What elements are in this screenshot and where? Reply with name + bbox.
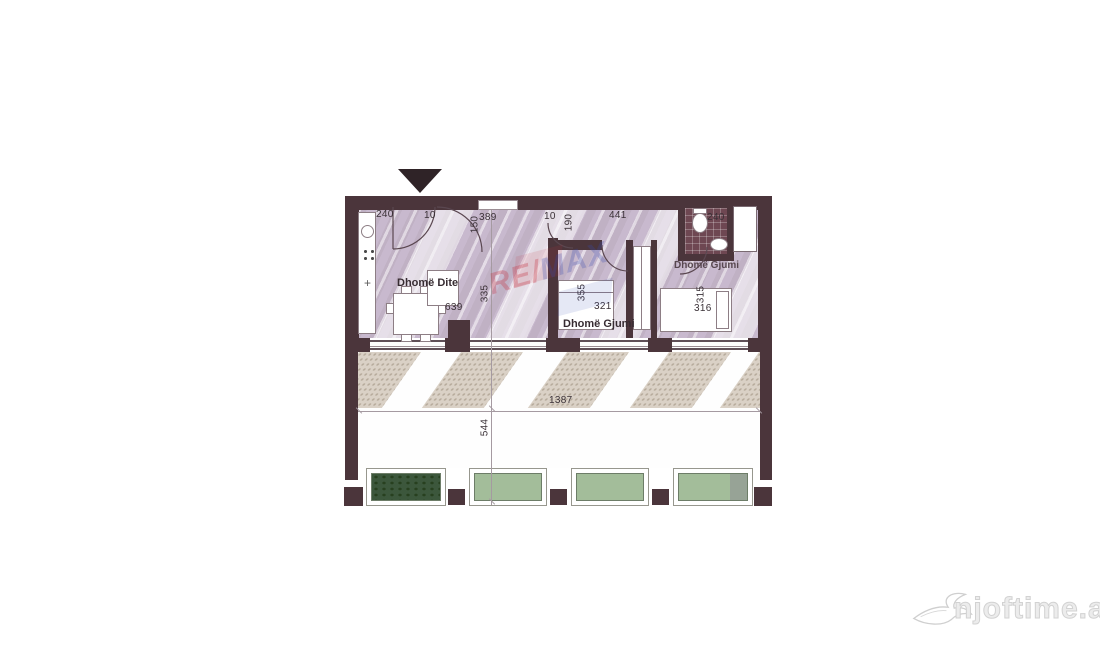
dim-living-width: 639 (445, 302, 463, 313)
njoftime-logo-text: njoftime.al (954, 592, 1100, 626)
terrace-pier (344, 487, 363, 506)
dim-mid-depth: 190 (563, 214, 574, 232)
dimension-line-vertical (491, 210, 492, 505)
dim-terrace-depth: 544 (479, 419, 490, 437)
terrace (357, 352, 760, 468)
planter-2 (469, 468, 547, 506)
dim-corridor-length: 441 (609, 210, 627, 221)
terrace-wall-right (760, 352, 772, 480)
dim-entry-clear: 10 (424, 210, 436, 221)
dim-terrace-width: 1387 (549, 395, 572, 406)
dim-bedroom2-depth: 315 (695, 286, 706, 304)
terrace-shadow (720, 352, 760, 408)
planter-plants (371, 473, 441, 501)
terrace-shadow (357, 352, 421, 408)
njoftime-logo: njoftime.al (912, 580, 1100, 638)
dim-living-depth: 335 (479, 285, 490, 303)
planter-grass (576, 473, 644, 501)
planter-1 (366, 468, 446, 506)
floor-plan-page: + (0, 0, 1100, 650)
terrace-shadow (528, 352, 629, 408)
planter-4 (673, 468, 753, 506)
terrace-wall-left (345, 352, 358, 480)
entrance-marker-icon (398, 169, 442, 193)
dim-entry-width: 240 (376, 209, 394, 220)
dim-hall-depth: 150 (469, 216, 480, 234)
room-label-bedroom2: Dhomë Gjumi (674, 260, 739, 271)
dim-hall-width: 389 (479, 212, 497, 223)
dim-bathroom-width: 240 (707, 212, 725, 223)
room-label-living: Dhomë Dite (397, 277, 458, 289)
dim-bedroom2-width: 316 (694, 303, 712, 314)
terrace-pier (448, 489, 465, 505)
planter-3 (571, 468, 649, 506)
planter-grass (474, 473, 542, 501)
terrace-pier (652, 489, 669, 505)
terrace-pier (754, 487, 772, 506)
terrace-shadow (422, 352, 523, 408)
terrace-shadow (630, 352, 731, 408)
room-label-bedroom1: Dhomë Gjumi (563, 318, 635, 330)
planter-grass (678, 473, 748, 501)
terrace-pier (550, 489, 567, 505)
dimension-line-horizontal (358, 411, 760, 412)
dim-mid-clear: 10 (544, 211, 556, 222)
